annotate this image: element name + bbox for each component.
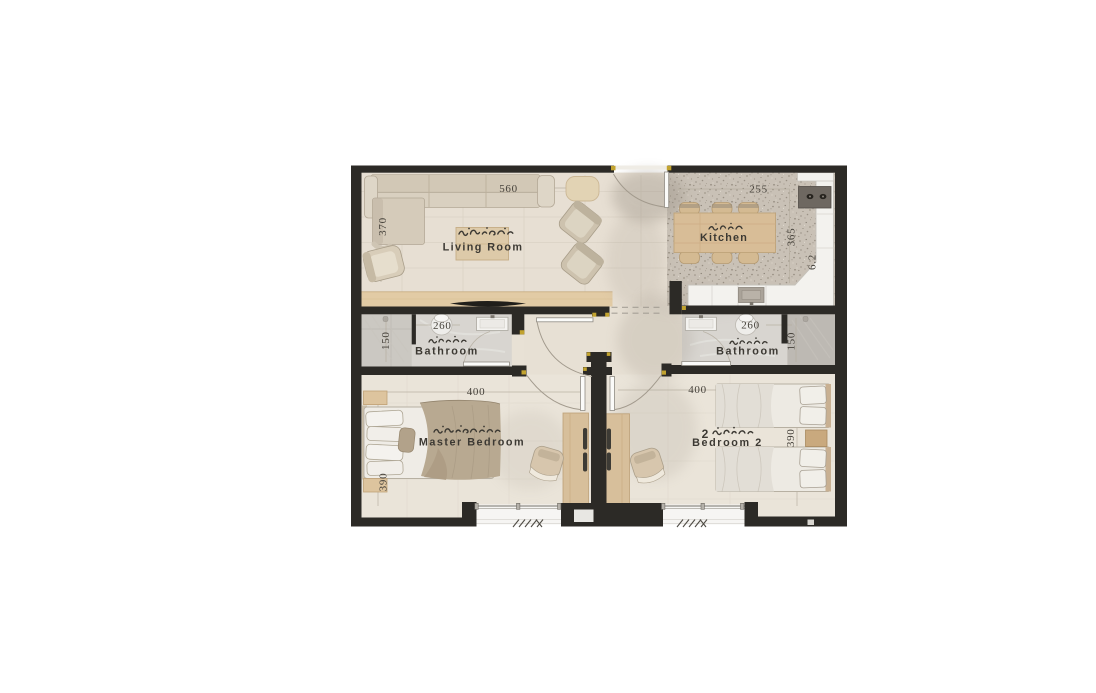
svg-text:Bathroom: Bathroom xyxy=(415,346,479,358)
svg-text:150: 150 xyxy=(380,331,392,350)
svg-text:6.2: 6.2 xyxy=(807,254,819,270)
svg-text:150: 150 xyxy=(786,332,798,351)
svg-text:Bathroom: Bathroom xyxy=(716,346,780,358)
svg-text:390: 390 xyxy=(785,428,797,447)
svg-text:Living Room: Living Room xyxy=(443,242,524,254)
svg-text:390: 390 xyxy=(378,473,390,492)
svg-text:370: 370 xyxy=(377,217,389,236)
svg-text:400: 400 xyxy=(467,386,486,398)
svg-text:260: 260 xyxy=(741,320,760,332)
svg-text:Master Bedroom: Master Bedroom xyxy=(419,437,525,449)
svg-text:255: 255 xyxy=(749,184,768,196)
svg-text:Bedroom 2: Bedroom 2 xyxy=(692,437,763,449)
svg-text:560: 560 xyxy=(499,183,518,195)
svg-text:365: 365 xyxy=(786,228,798,247)
svg-text:260: 260 xyxy=(433,320,452,332)
svg-text:Kitchen: Kitchen xyxy=(700,232,748,244)
svg-text:400: 400 xyxy=(688,384,707,396)
